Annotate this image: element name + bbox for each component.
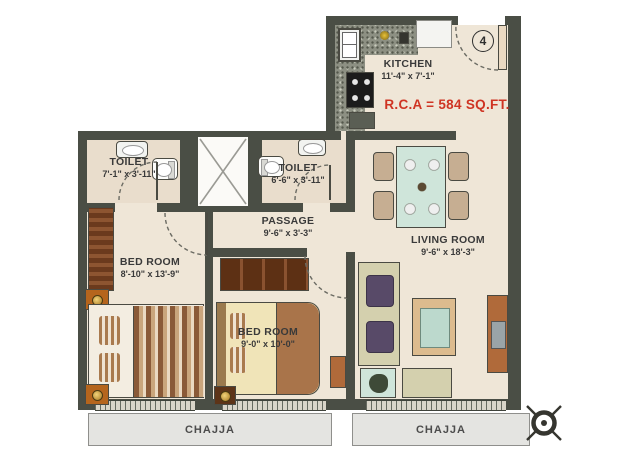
ottoman-icon [402, 368, 452, 398]
room-dimensions: 8'-10" x 13'-9" [120, 269, 180, 280]
nightstand-icon [85, 384, 109, 405]
wall-kitchen-left [326, 16, 335, 140]
kitchen-window [416, 20, 452, 48]
room-dimensions: 11'-4" x 7'-1" [381, 71, 434, 82]
kitchen-sink-icon [338, 28, 361, 62]
wall-bedroom2-top [213, 248, 307, 257]
tv-icon [491, 321, 506, 349]
nightstand-icon [214, 386, 236, 405]
bedroom-2-label: BED ROOM 9'-0" x 10'-0" [238, 326, 298, 350]
dining-chair-icon [448, 191, 469, 220]
plant-icon [369, 374, 388, 393]
toilet-1-wc-icon [152, 158, 178, 180]
bedroom-2-side-table-icon [330, 356, 346, 388]
passage-label: PASSAGE 9'-6" x 3'-3" [262, 215, 315, 239]
chajja-right-label: CHAJJA [416, 424, 466, 436]
counter-plant-icon [380, 31, 389, 40]
wall-under-toilet1-b [157, 203, 194, 212]
room-name: BED ROOM [238, 326, 298, 339]
room-name: TOILET [271, 162, 324, 175]
bedroom-1-window [95, 400, 195, 411]
bedroom-1-label: BED ROOM 8'-10" x 13'-9" [120, 256, 180, 280]
room-name: KITCHEN [381, 58, 434, 71]
flat-number: 4 [480, 34, 487, 48]
chajja-left-label: CHAJJA [185, 424, 235, 436]
chajja-left: CHAJJA [88, 413, 332, 446]
room-dimensions: 9'-6" x 18'-3" [411, 247, 485, 258]
lift-shaft [198, 137, 248, 206]
sofa-side-table-icon [360, 368, 396, 398]
room-name: LIVING ROOM [411, 234, 485, 247]
bedroom-1-wardrobe-icon [88, 207, 114, 291]
dining-chair-icon [448, 152, 469, 181]
living-room-label: LIVING ROOM 9'-6" x 18'-3" [411, 234, 485, 258]
dining-chair-icon [373, 191, 394, 220]
wall-under-toilet2-b [330, 203, 355, 212]
room-dimensions: 6'-6" x 3'-11" [271, 175, 324, 186]
toilet-2-basin-icon [298, 139, 326, 156]
toilet-1-label: TOILET 7'-1" x 3'-11" [102, 156, 155, 180]
compass-icon [527, 406, 561, 440]
area-label: R.C.A = 584 SQ.FT. [384, 97, 509, 112]
room-dimensions: 9'-0" x 10'-0" [238, 339, 298, 350]
floor-plan: CHAJJA CHAJJA 4 [0, 0, 626, 470]
kitchen-appliance-icon [349, 112, 375, 129]
wall-toilet1-right [180, 131, 192, 212]
dining-chair-icon [373, 152, 394, 181]
coffee-table-icon [412, 298, 456, 356]
toilet-2-label: TOILET 6'-6" x 3'-11" [271, 162, 324, 186]
flat-number-badge: 4 [472, 30, 494, 52]
sofa-icon [358, 262, 400, 366]
bedroom-2-wardrobe-icon [220, 258, 309, 291]
counter-item-icon [399, 32, 409, 44]
wall-under-toilet2-a [254, 203, 303, 212]
wall-left [78, 131, 87, 410]
tv-unit-icon [487, 295, 508, 373]
wall-bedroom1-right [205, 212, 213, 400]
room-dimensions: 7'-1" x 3'-11" [102, 169, 155, 180]
wall-kitchen-living [346, 131, 456, 140]
wall-living-left [346, 131, 355, 212]
wall-living-left-lower [346, 252, 355, 410]
room-dimensions: 9'-6" x 3'-3" [262, 228, 315, 239]
chajja-right: CHAJJA [352, 413, 530, 446]
bedroom-2-window [222, 400, 326, 411]
wall-right [508, 16, 521, 410]
dining-table-icon [396, 146, 446, 228]
room-name: BED ROOM [120, 256, 180, 269]
kitchen-label: KITCHEN 11'-4" x 7'-1" [381, 58, 434, 82]
stove-icon [346, 72, 374, 108]
room-name: TOILET [102, 156, 155, 169]
entry-door-leaf [498, 25, 507, 70]
living-room-window [366, 400, 506, 411]
room-name: PASSAGE [262, 215, 315, 228]
